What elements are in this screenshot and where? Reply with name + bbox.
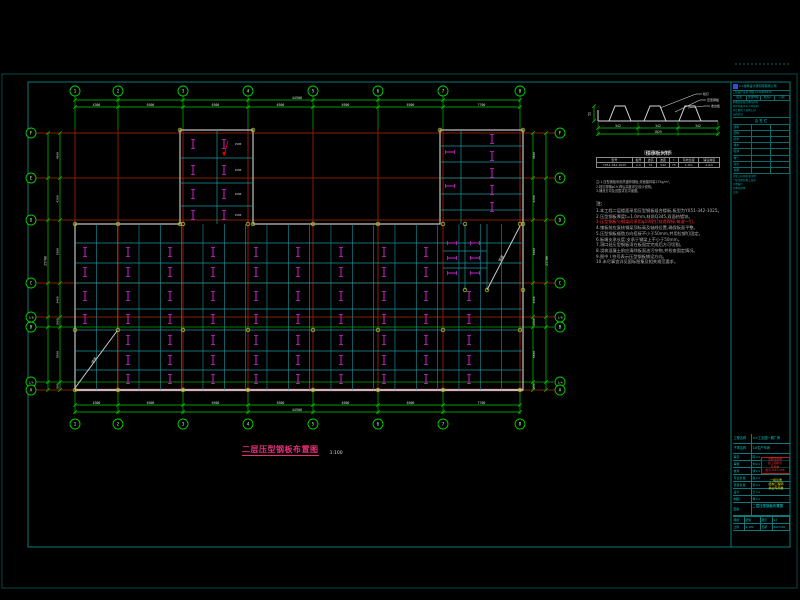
grid-bubble-label: 3 — [182, 422, 185, 428]
subproject-row: 子项名称 1#生产车间 — [733, 444, 790, 454]
drawing-name-row: 图名 二层压型钢板布置图 — [733, 503, 790, 516]
grid-bubble-label: 5 — [312, 422, 315, 428]
project-label: 工程名称 — [733, 434, 752, 443]
grid-bubble-label: F — [30, 131, 33, 137]
meta-cell: 1:100 — [745, 523, 761, 530]
signature-cell — [771, 143, 790, 148]
table-cell: 1.0 — [632, 163, 644, 168]
personnel-row: 制图李×× — [733, 496, 790, 503]
grid-bubble-label: D — [559, 218, 562, 224]
panel-label: 1500 — [235, 142, 242, 146]
signature-cell — [752, 137, 771, 142]
drawing-name-label: 图名 — [733, 503, 752, 515]
grid-bubble-label: 1/B — [28, 316, 33, 320]
dim-label: 6500 — [147, 401, 155, 405]
personnel-rows: 审定陈××审核刘××校对张××专业负责赵××项目负责孙××设计王××制图李××出… — [733, 454, 790, 503]
personnel-cell: 审核 — [733, 461, 752, 467]
dim-total: 25700 — [545, 256, 549, 266]
stamp-line: 日期: — [733, 191, 790, 195]
dim-label: 6300 — [56, 248, 60, 255]
grid-bubble-label: 6 — [377, 422, 380, 428]
signature-cell — [752, 125, 771, 130]
personnel-cell: 项目负责 — [733, 482, 752, 488]
signature-cell: 排水 — [733, 143, 752, 148]
signature-cell — [771, 137, 790, 142]
dim-label: 3400 — [56, 296, 60, 303]
signature-table: 建筑结构给水排水暖通电气动力总图 — [733, 125, 790, 175]
notes-lines: 1.本工程二层楼面采用压型钢板组合楼板,板型为YX51-342-1025。2.压… — [596, 208, 738, 265]
title-block: 工程名称 ××工业园一期厂房 子项名称 1#生产车间 审定陈××审核刘××校对张… — [733, 434, 790, 531]
leader-label: 压型钢板 — [707, 97, 719, 102]
signature-cell — [752, 168, 771, 173]
note-line: 1.本工程二层楼面采用压型钢板组合楼板,板型为YX51-342-1025。 — [596, 208, 738, 214]
signature-cell — [771, 125, 790, 130]
project-value: ××工业园一期厂房 — [752, 434, 790, 443]
deck-table-wrap: 压型钢板参数表 型号板厚波高波距t有效宽度铺设跨度YX51-342-10251.… — [596, 150, 720, 168]
table-cell: YX51-342-1025 — [597, 163, 633, 168]
dim-total: 44500 — [292, 96, 302, 100]
signature-cell: 电气 — [733, 156, 752, 161]
dim-label: 6500 — [407, 401, 415, 405]
grid-bubble-label: A — [559, 388, 562, 394]
meta-cell: 12 — [773, 516, 790, 523]
grid-bubble-label: 1/B — [557, 316, 562, 320]
detail-notes: 注:1.压型钢板采用热镀锌钢板,双面镀锌量275g/m²。2.栓钉规格φ19,焊… — [596, 180, 730, 194]
signature-cell — [752, 162, 771, 167]
signature-cell — [771, 149, 790, 154]
revision-header-cell: 修改内容 — [747, 96, 761, 100]
signature-title: 会 签 栏 — [733, 117, 790, 125]
dim-label: 4500 — [56, 152, 60, 159]
table-cell: 1.0m — [679, 163, 699, 168]
signature-cell — [771, 131, 790, 136]
dim-label: 4500 — [532, 152, 536, 159]
grid-bubble-label: 2 — [117, 422, 120, 428]
grid-bubble-label: 8 — [519, 422, 522, 428]
sheet-meta: 图别结施图号12比例1:100日期2023.06 — [733, 516, 790, 531]
grid-bubble-label: F — [559, 131, 562, 137]
dim-label: 6500 — [342, 103, 350, 107]
dim-total: 44500 — [292, 408, 302, 412]
signature-cell — [771, 162, 790, 167]
drawing-name-value: 二层压型钢板布置图 — [752, 503, 790, 515]
cad-canvas: 1122334455667788FFEEDDCC1/B1/BBB1/A1/AAA… — [0, 0, 800, 600]
dim-label: 6500 — [147, 103, 155, 107]
table-data-row: YX51-342-10251.051342751.0m2.0m — [597, 163, 720, 168]
dim-label: 51 — [588, 112, 592, 116]
drawing-scale: 1:100 — [330, 451, 343, 456]
dim-label: 7700 — [478, 103, 486, 107]
engineer-stamp-line: 执业专用章 — [764, 486, 789, 490]
grid-bubble-label: 1/A — [557, 381, 562, 385]
meta-cell: 结施 — [745, 516, 761, 523]
company-logo-icon — [733, 84, 738, 89]
panel-label: 1500 — [235, 213, 242, 217]
dim-label: 4300 — [93, 401, 101, 405]
dim-label: 6500 — [212, 103, 220, 107]
dim-label: 1000 — [56, 318, 60, 325]
signature-cell — [752, 149, 771, 154]
note-line: 10.未尽事宜详见国标图集及相关规范要求。 — [596, 259, 738, 265]
table-cell: 75 — [669, 163, 678, 168]
personnel-cell: 专业负责 — [733, 475, 752, 481]
dim-label: 342 — [655, 124, 661, 128]
dim-label: 7700 — [478, 401, 486, 405]
grid-bubble-label: 1 — [74, 89, 77, 95]
engineer-stamp: 一级注册结构工程师执业专用章 — [764, 478, 789, 491]
personnel-cell: 李×× — [752, 496, 790, 502]
signature-cell — [752, 143, 771, 148]
meta-cell: 比例 — [733, 523, 745, 530]
review-stamp: 出图专用章施工图审查专用章编号2023-058 — [761, 457, 790, 474]
signature-cell — [771, 168, 790, 173]
dim-label: 5500 — [532, 351, 536, 358]
revision-header-cell: 版次 — [733, 96, 747, 100]
revision-header-cell: 日期 — [775, 96, 789, 100]
dim-total: 25700 — [44, 256, 48, 266]
cad-sheet: 1122334455667788FFEEDDCC1/B1/BBB1/A1/AAA… — [0, 0, 800, 600]
signature-cell — [752, 131, 771, 136]
dim-label: 4300 — [93, 103, 101, 107]
dim-label: 4200 — [532, 195, 536, 202]
personnel-cell: 设计 — [733, 489, 752, 495]
dim-label: 800 — [532, 383, 536, 389]
meta-cell: 日期 — [761, 523, 773, 530]
dim-label: 6300 — [532, 248, 536, 255]
dim-label: 3400 — [532, 296, 536, 303]
signature-cell — [752, 156, 771, 161]
ramp-label: 坡道 — [90, 355, 98, 364]
signature-cell: 建筑 — [733, 125, 752, 130]
signature-row: 总图 — [733, 168, 790, 174]
grid-bubble-label: 8 — [519, 89, 522, 95]
grid-bubble-label: 6 — [377, 89, 380, 95]
grid-bubble-label: 1 — [74, 422, 77, 428]
revision-header-cell: 修改人 — [761, 96, 775, 100]
review-stamp-line: 编号2023-058 — [762, 469, 789, 473]
dim-label: 5500 — [56, 351, 60, 358]
signature-cell: 总图 — [733, 168, 752, 173]
grid-bubble-label: B — [30, 325, 33, 331]
grid-bubble-label: E — [30, 176, 33, 182]
grid-bubble-label: B — [559, 325, 562, 331]
subproject-label: 子项名称 — [733, 444, 752, 453]
grid-bubble-label: 3 — [182, 89, 185, 95]
deck-table-title: 压型钢板参数表 — [596, 150, 720, 156]
grid-bubble-label: C — [559, 281, 562, 287]
personnel-cell: 审定 — [733, 454, 752, 460]
notes-block: 注: 1.本工程二层楼面采用压型钢板组合楼板,板型为YX51-342-1025。… — [596, 202, 738, 265]
grid-bubble-label: 4 — [247, 89, 250, 95]
profile-rib — [609, 106, 631, 121]
company-row: ××建筑设计研究院有限公司 — [733, 83, 790, 91]
meta-cell: 2023.06 — [773, 523, 790, 530]
ramp-label: 坡道 — [497, 254, 505, 263]
dim-label: 4200 — [56, 195, 60, 202]
dim-label: 6500 — [342, 401, 350, 405]
grid-bubble-label: 1/A — [28, 381, 33, 385]
grid-bubble-label: 7 — [442, 89, 445, 95]
meta-cell: 图号 — [761, 516, 773, 523]
table-cell: 342 — [657, 163, 669, 168]
company-name: ××建筑设计研究院有限公司 — [739, 85, 777, 88]
grid-bubble-label: D — [30, 218, 33, 224]
dim-label: 6500 — [407, 103, 415, 107]
dim-total: 1025 — [654, 130, 662, 134]
profile-rib — [644, 106, 666, 121]
subproject-value: 1#生产车间 — [752, 444, 790, 453]
panel-label: 1500 — [235, 168, 242, 172]
grid-bubble-label: E — [559, 176, 562, 182]
signature-cell: 动力 — [733, 162, 752, 167]
leader-label: 收边板 — [711, 103, 720, 108]
signature-cell: 结构 — [733, 131, 752, 136]
dim-label: 6500 — [212, 401, 220, 405]
signature-cell: 给水 — [733, 137, 752, 142]
drawing-title-group: 二层压型钢板布置图 1:100 — [242, 437, 343, 456]
drawing-title: 二层压型钢板布置图 — [242, 445, 319, 456]
detail-note-line: 3.铺设方向及范围详见平面图。 — [596, 189, 730, 194]
table-cell: 2.0m — [699, 163, 720, 168]
meta-cell: 图别 — [733, 516, 745, 523]
dim-label: 6500 — [277, 103, 285, 107]
grid-bubble-label: C — [30, 281, 33, 287]
personnel-cell: 制图 — [733, 496, 752, 502]
policy-lines: 本图纸版权归本院所有未经书面许可不得复制转让或用于其他工程违者必究 — [733, 101, 790, 116]
dim-label: 6500 — [277, 401, 285, 405]
titleblock-strip: ××建筑设计研究院有限公司 工程设计证书 甲级 A132005678 版次修改内… — [733, 83, 790, 195]
leader-label: 栓钉 — [703, 91, 709, 96]
grid-bubble-label: A — [30, 388, 33, 394]
panel-label: 1500 — [235, 192, 242, 196]
red-arrowhead — [222, 152, 227, 157]
signature-cell — [771, 156, 790, 161]
grid-bubble-label: 4 — [247, 422, 250, 428]
signature-cell: 暖通 — [733, 149, 752, 154]
stamp-lines: 注册工程师执业印章一级注册结构工程师印章编号:出图专用章日期: — [733, 175, 790, 195]
dim-label: 342 — [615, 124, 621, 128]
project-name-row: 工程名称 ××工业园一期厂房 — [733, 434, 790, 444]
grid-bubble-label: 2 — [117, 89, 120, 95]
dim-label: 1000 — [532, 318, 536, 325]
dim-label: 342 — [695, 124, 701, 128]
personnel-cell: 校对 — [733, 468, 752, 474]
grid-bubble-label: 5 — [312, 89, 315, 95]
dim-label: 800 — [56, 383, 60, 389]
grid-bubble-label: 7 — [442, 422, 445, 428]
deck-parameter-table: 型号板厚波高波距t有效宽度铺设跨度YX51-342-10251.05134275… — [596, 157, 720, 168]
table-cell: 51 — [645, 163, 657, 168]
